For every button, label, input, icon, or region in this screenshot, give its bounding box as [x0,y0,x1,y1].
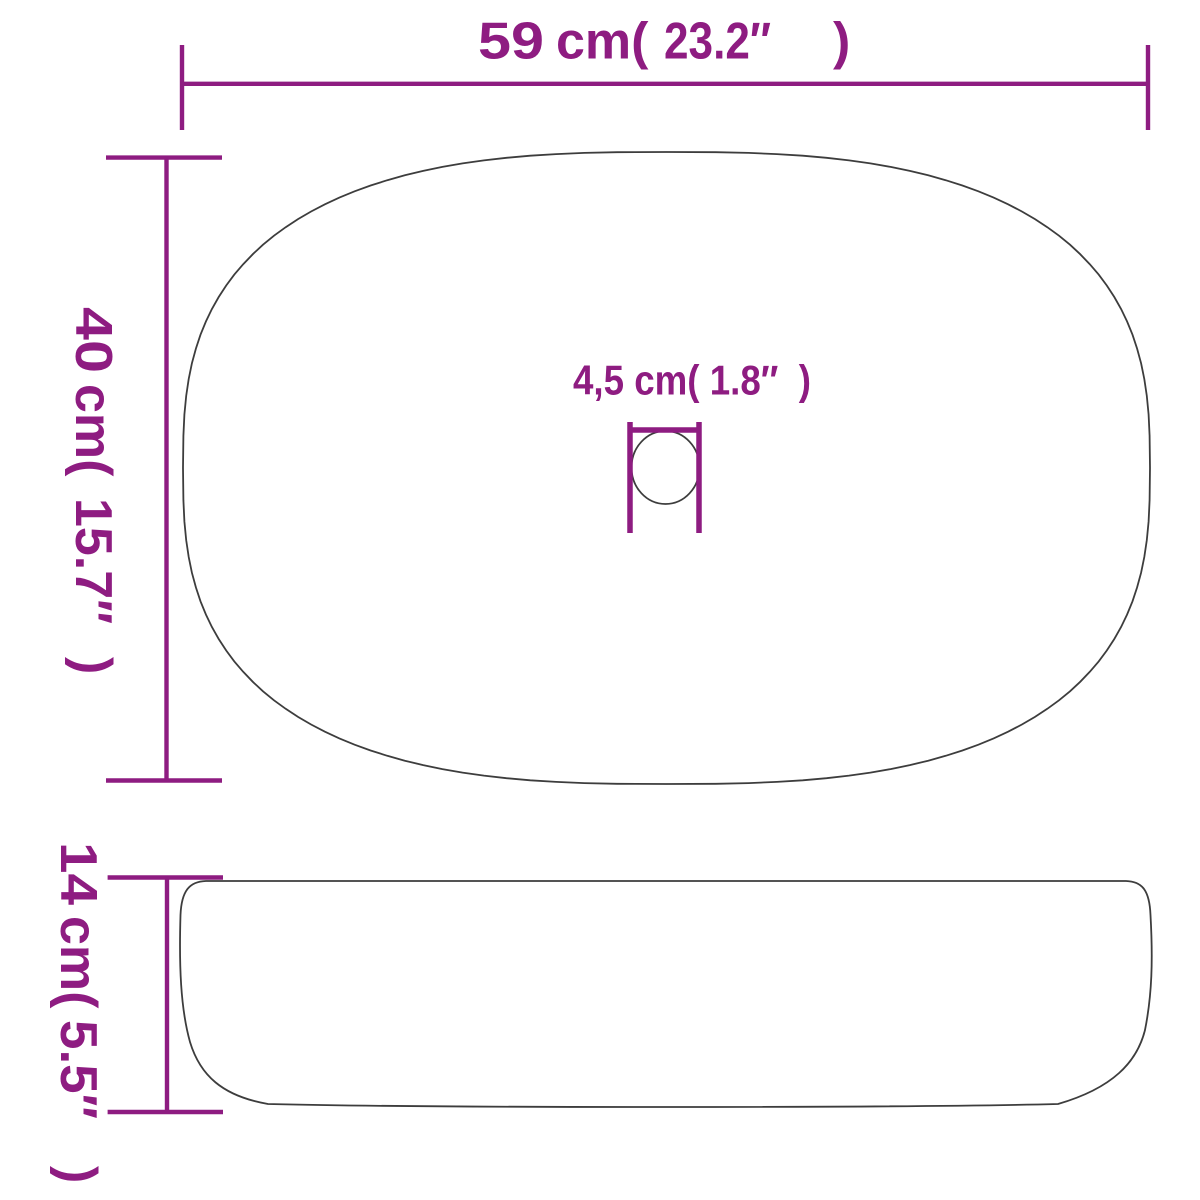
svg-text:59: 59 [478,13,544,71]
svg-text:cm(: cm( [64,384,122,477]
svg-text:cm(: cm( [49,916,107,1009]
svg-text:): ) [49,1166,107,1183]
svg-text:): ) [64,657,122,674]
svg-text:15.7″: 15.7″ [64,498,122,624]
svg-text:40: 40 [64,307,122,373]
svg-text:5.5″: 5.5″ [49,1020,107,1119]
svg-text:14: 14 [49,842,107,905]
svg-text:cm(: cm( [556,13,649,71]
svg-text:23.2″: 23.2″ [664,13,771,71]
svg-text:4,5 cm( 1.8″ ): 4,5 cm( 1.8″ ) [573,357,811,404]
svg-text:): ) [833,13,850,71]
